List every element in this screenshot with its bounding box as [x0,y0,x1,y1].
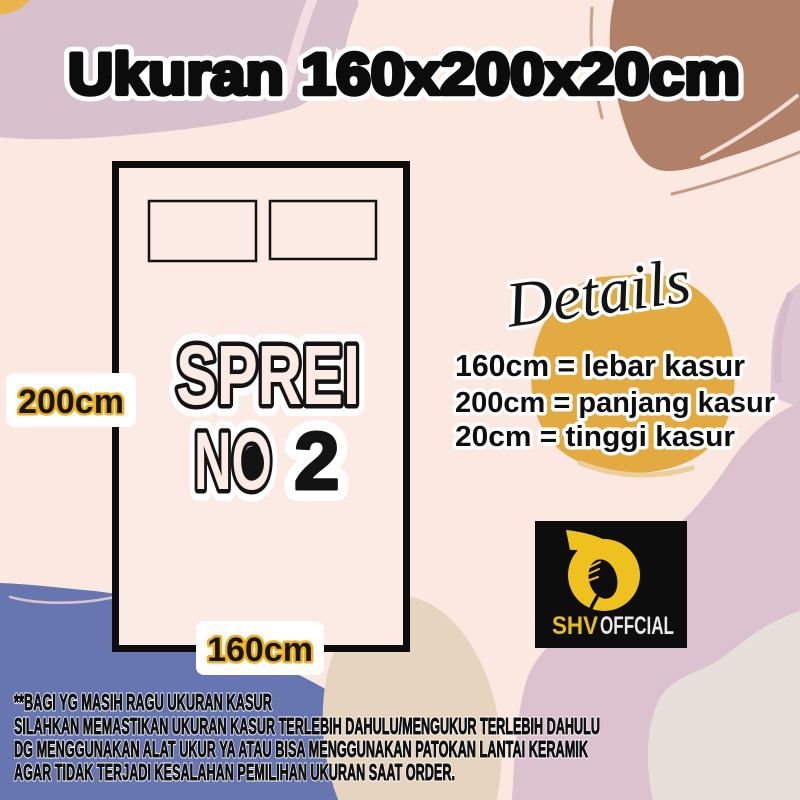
svg-text:160cm = lebar kasur: 160cm = lebar kasur [455,348,745,383]
svg-text:AGAR TIDAK TERJADI KESALAHAN P: AGAR TIDAK TERJADI KESALAHAN PEMILIHAN U… [14,759,455,785]
svg-text:OFFCIAL: OFFCIAL [600,612,674,640]
svg-text:200cm: 200cm [18,383,124,421]
svg-text:160cm: 160cm [207,631,313,669]
svg-text:20cm = tinggi kasur: 20cm = tinggi kasur [455,421,735,453]
svg-text:**BAGI YG MASIH RAGU UKURAN KA: **BAGI YG MASIH RAGU UKURAN KASUR [14,689,272,715]
svg-text:SHV: SHV [552,612,598,640]
svg-text:2: 2 [294,416,340,507]
svg-text:200cm = panjang kasur: 200cm = panjang kasur [455,387,775,419]
svg-text:Ukuran 160x200x20cm: Ukuran 160x200x20cm [68,42,740,107]
svg-text:SPREI: SPREI [176,328,360,422]
